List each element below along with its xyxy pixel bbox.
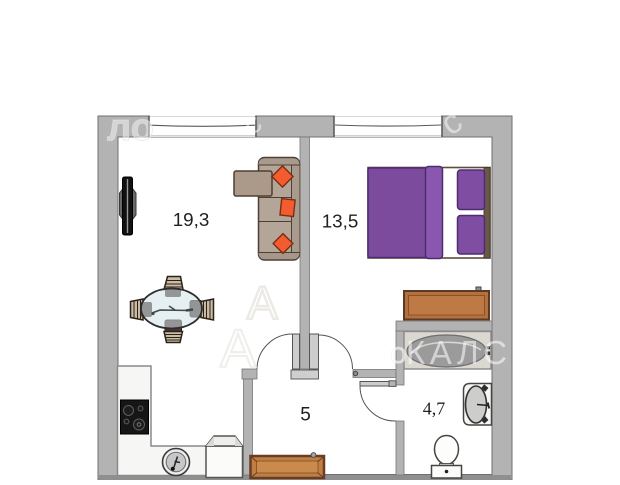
svg-text:А: А xyxy=(220,319,256,379)
svg-text:4,7: 4,7 xyxy=(423,399,446,419)
svg-text:КАЛС: КАЛС xyxy=(406,334,511,371)
svg-text:ло: ло xyxy=(107,107,154,149)
svg-text:о: о xyxy=(390,337,407,370)
svg-text:19,3: 19,3 xyxy=(173,209,210,230)
svg-text:5: 5 xyxy=(300,405,311,426)
svg-text:13,5: 13,5 xyxy=(322,211,359,232)
